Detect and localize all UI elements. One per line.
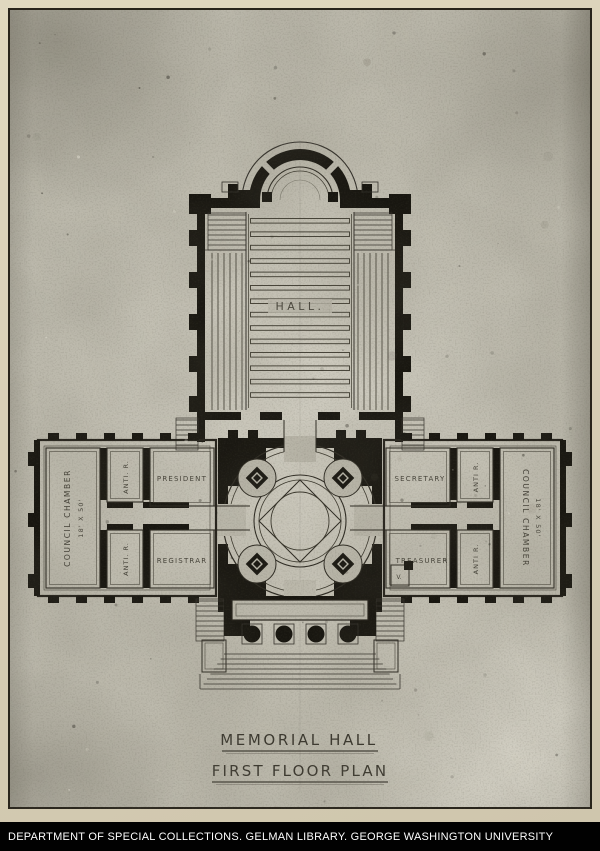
archive-caption-text: DEPARTMENT OF SPECIAL COLLECTIONS. GELMA…: [8, 831, 553, 843]
scanned-photograph: HALL.: [0, 0, 600, 822]
archive-caption-bar: DEPARTMENT OF SPECIAL COLLECTIONS. GELMA…: [0, 822, 600, 851]
drawing-paper: [8, 8, 592, 809]
